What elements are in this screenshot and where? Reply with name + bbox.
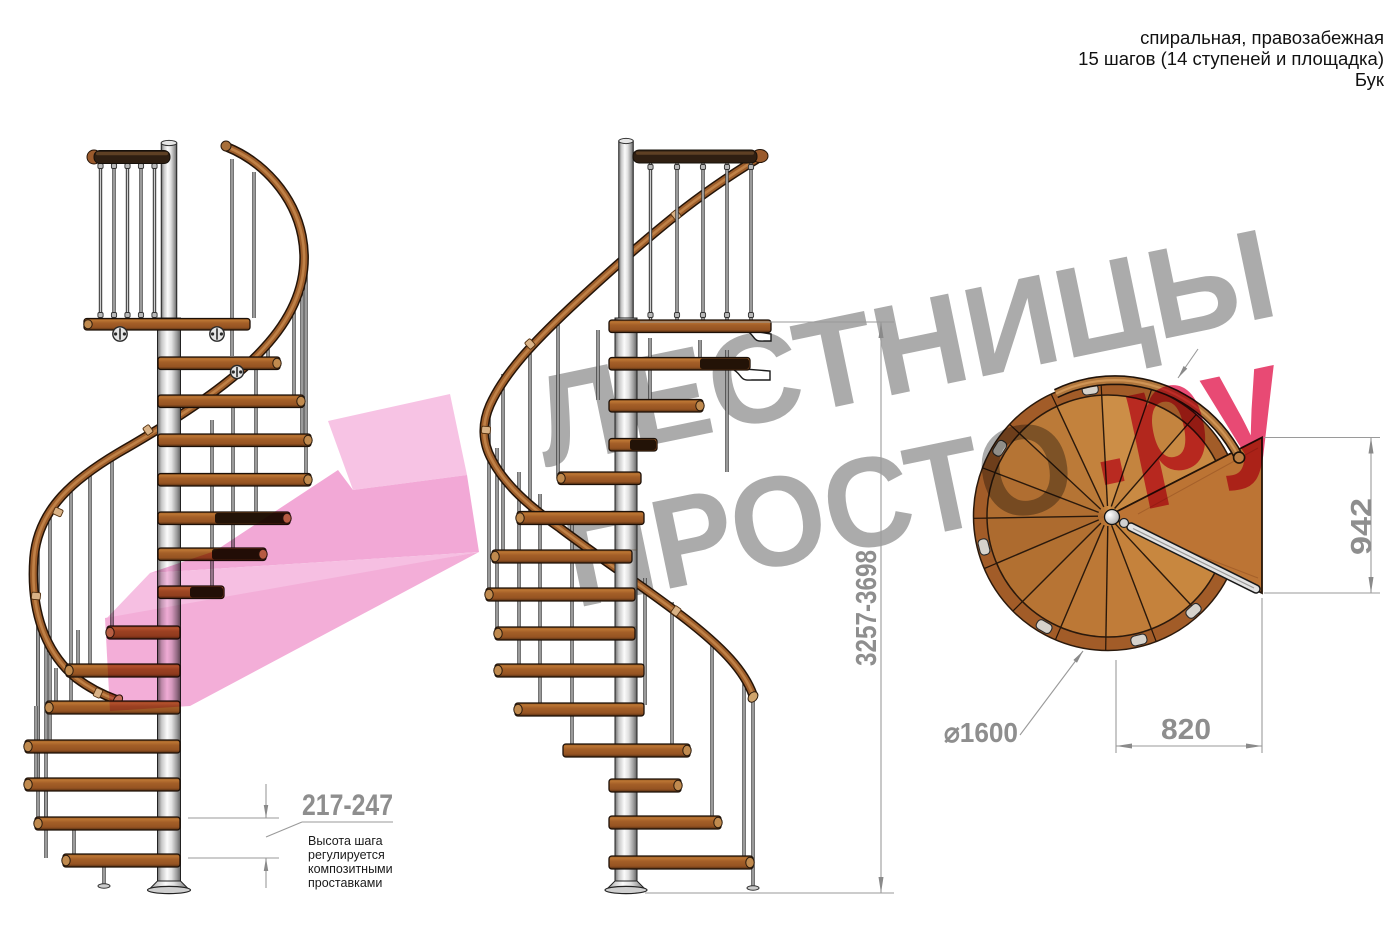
- svg-text:проставками: проставками: [308, 876, 382, 890]
- svg-text:217-247: 217-247: [302, 789, 393, 822]
- svg-text:820: 820: [1161, 714, 1211, 746]
- svg-text:спиральная, правозабежная: спиральная, правозабежная: [1140, 27, 1384, 48]
- svg-text:⌀1600: ⌀1600: [944, 717, 1018, 748]
- svg-text:3257-3698: 3257-3698: [851, 550, 883, 666]
- svg-text:942: 942: [1346, 498, 1378, 555]
- svg-text:композитными: композитными: [308, 862, 393, 876]
- svg-text:Высота шага: Высота шага: [308, 834, 383, 848]
- svg-text:Бук: Бук: [1355, 69, 1385, 90]
- svg-text:регулируется: регулируется: [308, 848, 385, 862]
- svg-text:15 шагов (14 ступеней и площад: 15 шагов (14 ступеней и площадка): [1078, 48, 1384, 69]
